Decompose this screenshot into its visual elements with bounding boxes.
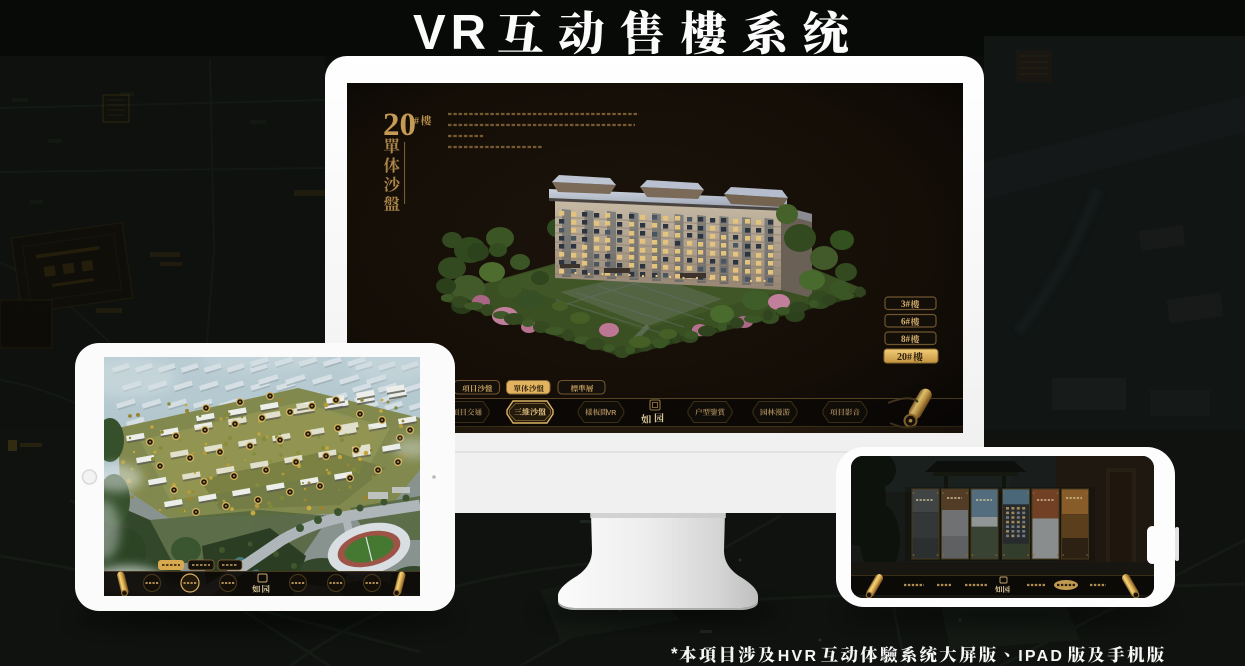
svg-text:IPAD: IPAD — [1018, 648, 1064, 665]
svg-text:HVR: HVR — [778, 648, 819, 665]
svg-text:VR: VR — [413, 6, 491, 60]
svg-text:*: * — [671, 644, 678, 663]
